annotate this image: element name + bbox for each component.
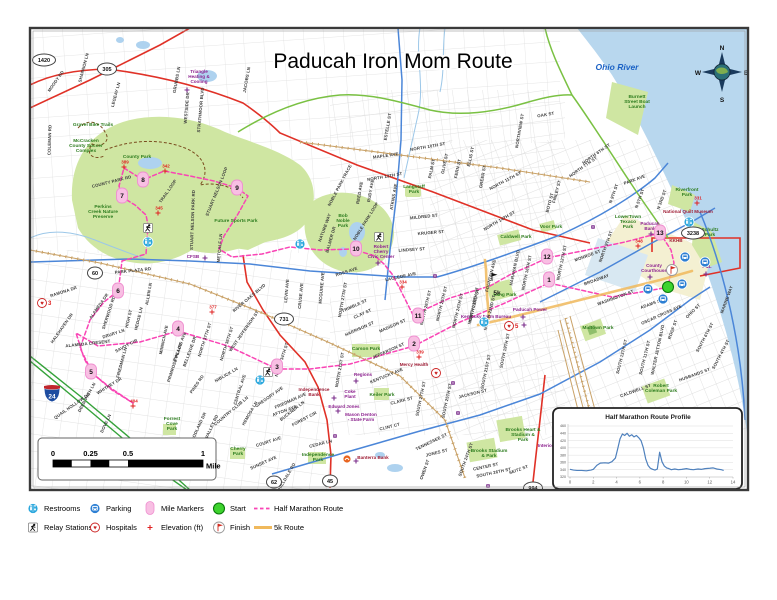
finish-icon [214, 522, 225, 533]
legend-label: Mile Markers [161, 504, 204, 513]
map-label: Keiler Park [369, 392, 394, 398]
svg-text:360: 360 [560, 461, 566, 465]
highway-shield-45: 45 [323, 475, 338, 487]
map-label: COLEMAN RD [46, 125, 52, 156]
legend-item: ♥Hospitals [91, 523, 138, 532]
map-label: Midtown Park [582, 325, 614, 331]
svg-text:62: 62 [271, 480, 277, 486]
map-label: Future Sports Park [214, 218, 258, 224]
legend-item: Half Marathon Route [254, 504, 343, 513]
svg-text:334: 334 [399, 280, 407, 285]
map-label: Lang Park [493, 292, 517, 298]
relay-icon [375, 233, 384, 242]
scale-bar: 0 0.25 0.5 1 Mile [38, 438, 221, 480]
relay-icon [29, 523, 38, 532]
parking-icon [680, 252, 690, 262]
svg-text:345: 345 [155, 206, 163, 211]
mile-marker: 10 [351, 241, 362, 256]
parking-icon [90, 504, 100, 514]
map-label: Voor Park [540, 224, 563, 230]
highway-shield-62: 62 [267, 476, 282, 488]
map-label: Edward Jones [328, 404, 360, 409]
legend-label: Start [230, 504, 247, 513]
legend-label: Relay Stations [44, 523, 93, 532]
svg-text:10: 10 [684, 480, 689, 485]
bldg-icon [433, 274, 437, 278]
bldg-icon [591, 225, 595, 229]
inset-title: Half Marathon Route Profile [605, 414, 691, 421]
svg-text:♥: ♥ [507, 324, 511, 330]
legend-item: Start [214, 503, 247, 514]
bldg-icon [333, 434, 337, 438]
legend-label: Half Marathon Route [274, 504, 343, 513]
svg-text:3: 3 [275, 364, 279, 371]
highway-shield-3238: 3238 [682, 227, 705, 239]
svg-text:14: 14 [731, 480, 736, 485]
scale-tick: 0.25 [83, 449, 98, 458]
bldg-icon [451, 381, 455, 385]
scale-tick: 0 [51, 449, 55, 458]
parking-icon [700, 257, 710, 267]
start-icon [214, 503, 225, 514]
svg-text:11: 11 [415, 313, 422, 320]
bank-icon [343, 455, 351, 463]
map-title: Paducah Iron Mom Route [273, 50, 512, 73]
legend-item: Mile Markers [146, 502, 204, 515]
svg-text:6: 6 [116, 288, 120, 295]
svg-text:♥: ♥ [434, 371, 438, 377]
legend: RestroomsParkingMile MarkersStartHalf Ma… [28, 502, 343, 534]
highway-shield-1420: 1420 [33, 54, 56, 66]
map-label: Banterra Bank [357, 455, 389, 460]
svg-text:4: 4 [176, 326, 180, 333]
map-label: KKHB [669, 238, 683, 243]
svg-text:342: 342 [162, 164, 170, 169]
map-canvas: Ohio River5kGravel Bike TrailsMcCrackenC… [0, 0, 777, 600]
highway-shield-731: 731 [275, 313, 294, 325]
start-icon [663, 282, 674, 293]
svg-text:5: 5 [89, 369, 93, 376]
svg-text:9: 9 [235, 185, 239, 192]
svg-text:45: 45 [327, 479, 333, 485]
mile-marker: 8 [138, 172, 149, 187]
parking-icon [658, 294, 668, 304]
hospital-icon: ♥ [91, 523, 100, 532]
svg-text:10: 10 [352, 246, 360, 253]
parking-icon [677, 279, 687, 289]
mile-marker: 5 [86, 364, 97, 379]
relay-icon [144, 224, 153, 233]
svg-text:404: 404 [130, 399, 138, 404]
svg-text:420: 420 [560, 439, 566, 443]
legend-item: Finish [214, 522, 251, 533]
svg-text:305: 305 [102, 67, 111, 73]
legend-label: Restrooms [44, 504, 81, 513]
milemarker-icon [146, 502, 154, 515]
mile-marker: 3 [272, 359, 283, 374]
elevation-icon [148, 525, 153, 530]
svg-text:339: 339 [416, 350, 424, 355]
svg-text:12: 12 [543, 254, 551, 261]
svg-text:460: 460 [560, 424, 566, 428]
svg-text:13: 13 [656, 230, 664, 237]
map-label: Regions [354, 372, 373, 377]
mile-marker: 11 [413, 308, 424, 323]
legend-label: Finish [230, 523, 250, 532]
map-label: Paducah Power [513, 307, 547, 312]
restroom-icon [295, 239, 305, 249]
highway-shield-60: 60 [88, 267, 103, 279]
map-label: National Quilt Museum [663, 209, 713, 214]
svg-text:3238: 3238 [687, 231, 699, 237]
scale-tick: 0.5 [123, 449, 133, 458]
legend-label: Elevation (ft) [161, 523, 204, 532]
svg-text:377: 377 [209, 305, 217, 310]
svg-text:♥: ♥ [40, 301, 44, 307]
mile-marker: 13 [655, 225, 666, 240]
legend-item: Relay Stations [29, 523, 93, 532]
svg-text:12: 12 [707, 480, 712, 485]
restroom-icon [28, 504, 38, 514]
hospital-icon: ♥ [432, 369, 441, 378]
restroom-icon [684, 217, 694, 227]
svg-text:331: 331 [694, 196, 702, 201]
elevation-profile-inset: Half Marathon Route Profile 320340360380… [553, 408, 742, 489]
legend-item: Elevation (ft) [148, 523, 204, 532]
mile-marker: 6 [113, 283, 124, 298]
map-label: Ohio River [596, 62, 640, 72]
map-label: Carson Park [352, 346, 381, 352]
svg-text:389: 389 [121, 160, 129, 165]
map-label: CFSB [187, 254, 200, 259]
mile-marker: 1 [544, 272, 555, 287]
scale-unit: Mile [206, 462, 221, 471]
legend-item: Parking [90, 504, 131, 514]
svg-text:731: 731 [279, 317, 288, 323]
map-label: TriangleHeating &Cooling [188, 69, 210, 84]
svg-text:♥: ♥ [93, 526, 97, 532]
svg-text:1: 1 [547, 277, 551, 284]
legend-label: 5k Route [274, 523, 304, 532]
svg-text:8: 8 [141, 177, 145, 184]
restroom-icon [479, 317, 489, 327]
map-label: Caldwell Park [500, 234, 532, 240]
svg-text:60: 60 [92, 271, 98, 277]
svg-text:340: 340 [560, 468, 566, 472]
highway-shield-305: 305 [98, 63, 117, 75]
svg-text:2: 2 [412, 341, 416, 348]
svg-text:320: 320 [560, 475, 566, 479]
compass-s: S [720, 97, 725, 104]
restroom-icon [143, 237, 153, 247]
highway-shield-994: 994 [524, 482, 543, 494]
compass-w: W [695, 70, 702, 77]
svg-text:380: 380 [560, 453, 566, 457]
parking-icon [643, 284, 653, 294]
map-label: Gravel Bike Trails [73, 122, 114, 128]
mile-marker: 7 [117, 188, 128, 203]
mile-marker: 9 [232, 180, 243, 195]
mile-marker: 12 [542, 249, 553, 264]
legend-label: Parking [106, 504, 131, 513]
legend-label: Hospitals [106, 523, 137, 532]
bldg-icon [456, 411, 460, 415]
compass-n: N [720, 45, 725, 52]
svg-text:400: 400 [560, 446, 566, 450]
svg-text:24: 24 [48, 394, 56, 401]
map-label: Mason Denton- State Farm [345, 412, 377, 422]
map-label: Mercy Health [400, 362, 429, 367]
svg-text:440: 440 [560, 431, 566, 435]
svg-text:7: 7 [120, 193, 124, 200]
scale-tick: 1 [201, 449, 205, 458]
map-label: CokePlant [344, 389, 356, 399]
finish-icon [667, 265, 678, 276]
legend-item: 5k Route [254, 523, 304, 532]
svg-text:348: 348 [635, 239, 643, 244]
svg-text:1420: 1420 [38, 58, 50, 64]
legend-item: Restrooms [28, 504, 81, 514]
mile-marker: 4 [173, 321, 184, 336]
